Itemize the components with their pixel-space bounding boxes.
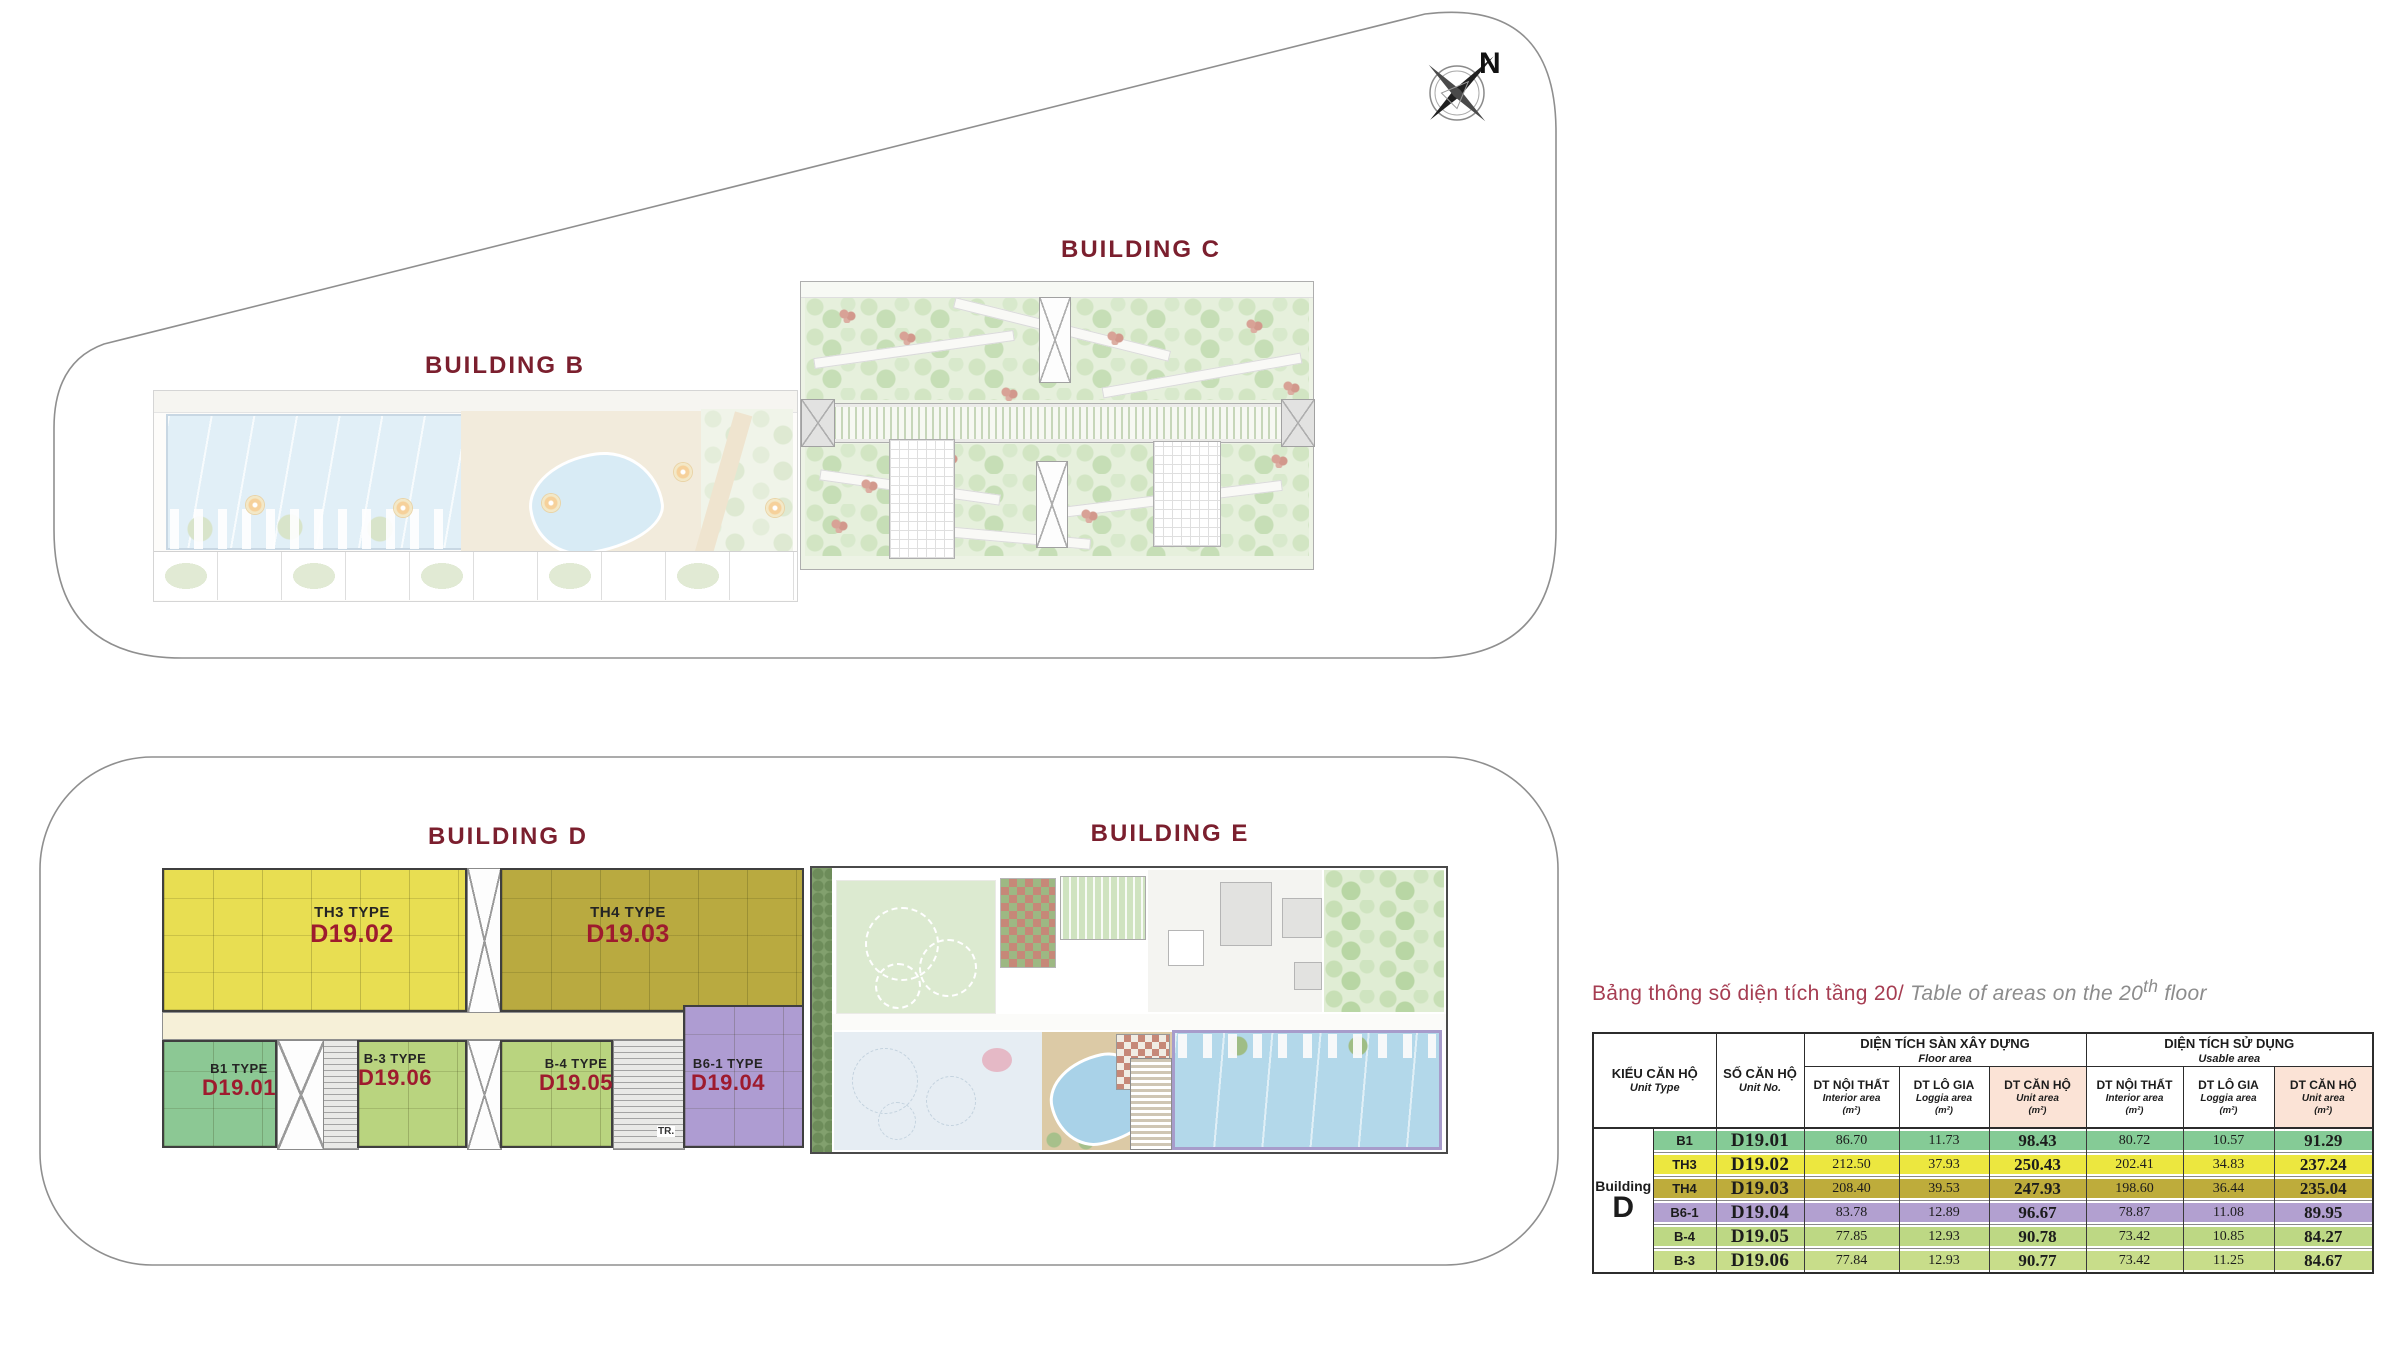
header-loggia-area: DT LÔ GIA Loggia area (m²)	[1899, 1067, 1989, 1129]
lift-core	[467, 868, 502, 1014]
header-interior-area: DT NỘI THẤT Interior area (m²)	[2086, 1067, 2183, 1129]
lift-core	[467, 1040, 502, 1150]
flower-cluster	[1246, 319, 1264, 333]
flower-cluster	[831, 519, 849, 533]
planter-row	[154, 551, 797, 600]
play-circle	[878, 1102, 916, 1140]
green-panel	[1324, 870, 1444, 1012]
plaza-structure	[1220, 882, 1272, 946]
table-title-english: Table of areas on the 20th floor	[1904, 982, 2207, 1005]
lawn-circle	[919, 939, 977, 997]
boardwalk-steps	[1130, 1058, 1172, 1150]
flower-cluster	[1001, 387, 1019, 401]
flower-cluster	[1271, 454, 1289, 468]
plaza-structure	[1294, 962, 1322, 990]
umbrella-icon	[394, 499, 412, 517]
table-title: Bảng thông số diện tích tầng 20/ Table o…	[1592, 976, 2392, 1006]
unit-label-th4: TH4 TYPED19.03	[586, 905, 670, 947]
compass-north-label: N	[1479, 47, 1501, 80]
lawn-panel	[836, 880, 996, 1014]
table-row: Building D B1 D19.01 86.7011.73 98.43 80…	[1593, 1128, 2373, 1153]
building-e-plan	[810, 866, 1448, 1154]
flower-cluster	[899, 331, 917, 345]
unit-label-b4: B-4 TYPED19.05	[539, 1057, 613, 1094]
header-unit-type: KIỂU CĂN HỘ Unit Type	[1593, 1033, 1716, 1128]
plan-c-edge-strip	[801, 282, 1313, 298]
building-b-plan	[153, 390, 798, 602]
lounger-row	[170, 509, 458, 549]
header-usable-area-group: DIỆN TÍCH SỬ DỤNG Usable area	[2086, 1033, 2373, 1067]
site-plan-sheet: N BUILDING B BUILDING C BUILDING D BUILD…	[0, 0, 2400, 1349]
play-circle	[852, 1048, 918, 1114]
umbrella-icon	[246, 496, 264, 514]
flower-cluster	[1081, 509, 1099, 523]
flower-cluster	[861, 479, 879, 493]
stair-core	[1036, 461, 1068, 548]
building-c-plan	[800, 281, 1314, 570]
building-b-label: BUILDING B	[425, 352, 585, 380]
table-row: B6-1 D19.04 83.7812.89 96.67 78.8711.08 …	[1593, 1201, 2373, 1225]
table-row: TH3 D19.02 212.5037.93 250.43 202.4134.8…	[1593, 1153, 2373, 1177]
hedge-strip	[812, 868, 832, 1152]
skylight-grid	[889, 439, 955, 559]
header-loggia-area: DT LÔ GIA Loggia area (m²)	[2183, 1067, 2274, 1129]
header-floor-area-group: DIỆN TÍCH SÀN XÂY DỰNG Floor area	[1804, 1033, 2086, 1067]
table-title-vietnamese: Bảng thông số diện tích tầng 20/	[1592, 982, 1904, 1005]
unit-label-th3: TH3 TYPED19.02	[310, 905, 394, 947]
lift-core	[1281, 399, 1315, 447]
stair-core	[1039, 297, 1071, 383]
building-c-label: BUILDING C	[1061, 236, 1221, 264]
header-unit-area: DT CĂN HỘ Unit area (m²)	[1989, 1067, 2086, 1129]
umbrella-icon	[542, 494, 560, 512]
pergola-walk	[833, 403, 1283, 443]
flower-cluster	[1283, 381, 1301, 395]
umbrella-icon	[674, 463, 692, 481]
plaza-area	[1148, 870, 1322, 1012]
header-unit-no: SỐ CĂN HỘ Unit No.	[1716, 1033, 1804, 1128]
area-table: KIỂU CĂN HỘ Unit Type SỐ CĂN HỘ Unit No.…	[1592, 1032, 2374, 1274]
building-e-label: BUILDING E	[1091, 820, 1250, 848]
building-cell: Building D	[1593, 1128, 1653, 1273]
building-d-label: BUILDING D	[428, 823, 588, 851]
lift-core	[277, 1040, 325, 1150]
plaza-structure	[1168, 930, 1204, 966]
table-row: B-4 D19.05 77.8512.93 90.78 73.4210.85 8…	[1593, 1225, 2373, 1249]
play-equipment	[982, 1048, 1012, 1072]
lawn-circle	[875, 963, 921, 1009]
stair-core	[323, 1040, 359, 1150]
umbrella-icon	[766, 499, 784, 517]
playground-area	[834, 1032, 1042, 1150]
stair-label: TR.	[657, 1126, 675, 1137]
pool-lounger-row	[1178, 1034, 1436, 1058]
table-row: B-3 D19.06 77.8412.93 90.77 73.4211.25 8…	[1593, 1249, 2373, 1274]
unit-label-b1: B1 TYPED19.01	[202, 1062, 276, 1099]
header-unit-area: DT CĂN HỘ Unit area (m²)	[2274, 1067, 2373, 1129]
skylight-grid	[1153, 441, 1221, 547]
planter-boxes	[1000, 878, 1056, 968]
flower-cluster	[1107, 331, 1125, 345]
trellis-garden	[1060, 876, 1146, 940]
lift-core	[801, 399, 835, 447]
table-row: TH4 D19.03 208.4039.53 247.93 198.6036.4…	[1593, 1177, 2373, 1201]
building-d-plan: TR. TH3 TYPED19.02 TH4 TYPED19.03 B1 TYP…	[162, 868, 804, 1148]
walkway-band	[832, 1014, 1446, 1030]
flower-cluster	[839, 309, 857, 323]
play-circle	[926, 1076, 976, 1126]
unit-label-b3: B-3 TYPED19.06	[358, 1052, 432, 1089]
unit-label-b61: B6-1 TYPED19.04	[691, 1057, 765, 1094]
header-interior-area: DT NỘI THẤT Interior area (m²)	[1804, 1067, 1899, 1129]
plaza-structure	[1282, 898, 1322, 938]
